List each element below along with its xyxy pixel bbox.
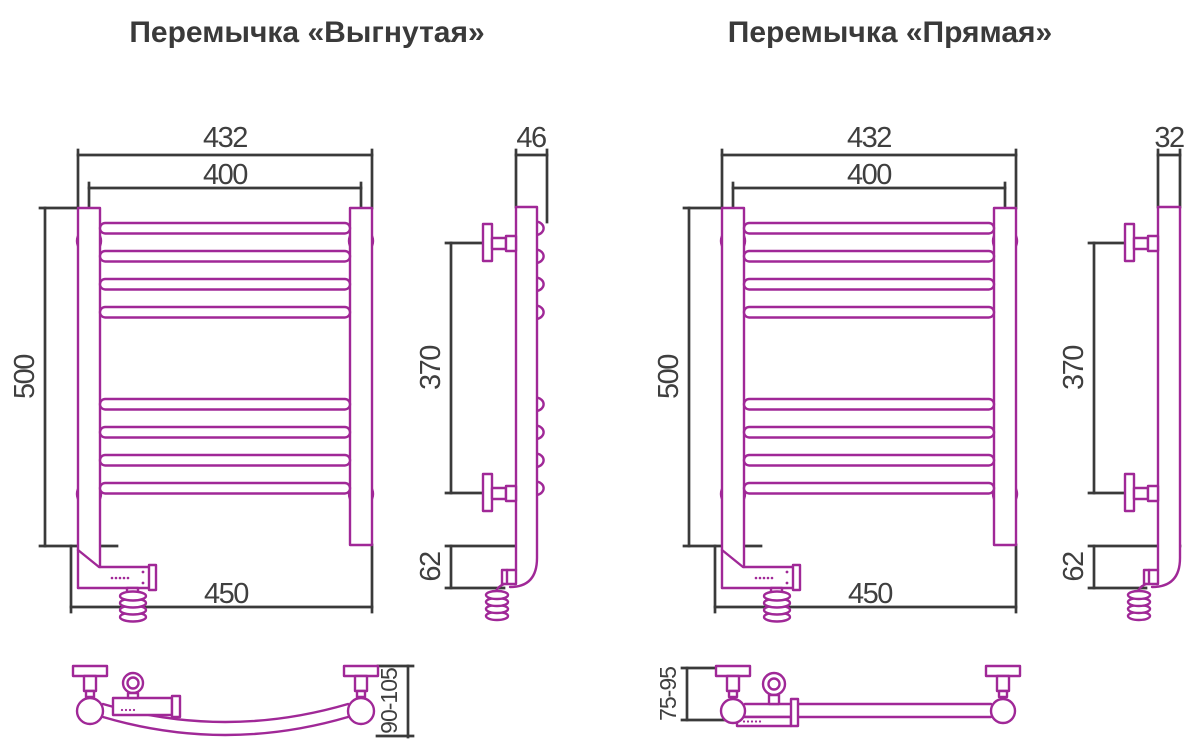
left-side-bottom-offset-label: 62 <box>415 552 447 582</box>
crossbars <box>100 223 350 494</box>
wall-bracket-top <box>483 224 516 261</box>
heating-unit <box>78 550 156 590</box>
heating-unit-top <box>113 673 180 717</box>
mount-top-left <box>73 666 107 697</box>
left-side-mount-spacing-label: 370 <box>415 346 447 390</box>
left-drawing-title: Перемычка «Выгнутая» <box>129 16 484 49</box>
technical-drawing-page: Перемычка «Выгнутая» 432 400 500 450 <box>0 0 1200 755</box>
mount-top-left <box>716 666 750 697</box>
right-front-axis-width-label: 400 <box>847 159 891 191</box>
post-end <box>348 698 374 724</box>
straight-crossbar <box>745 704 991 717</box>
post-end <box>77 698 103 724</box>
right-top-wall-clearance-label: 75-95 <box>655 667 681 721</box>
left-front-bottom-width-label: 450 <box>204 578 248 610</box>
left-front-view <box>77 208 373 622</box>
left-top-wall-clearance-label: 90-105 <box>376 668 402 734</box>
right-top-view <box>716 666 1020 726</box>
left-front-height-label: 500 <box>9 355 41 399</box>
left-top-view <box>73 666 378 735</box>
left-side-depth-label: 46 <box>516 122 546 154</box>
left-front-axis-width-label: 400 <box>203 159 247 191</box>
right-side-depth-label: 32 <box>1154 122 1184 154</box>
right-front-bottom-width-label: 450 <box>848 578 892 610</box>
power-cord-coil-side <box>1128 591 1150 620</box>
right-drawing-title: Перемычка «Прямая» <box>728 16 1052 49</box>
cord-gland-top <box>763 673 785 695</box>
post-end <box>991 699 1015 723</box>
right-front-height-label: 500 <box>653 355 685 399</box>
power-cord-coil <box>120 588 146 622</box>
cable-gland <box>496 570 516 592</box>
left-side-view <box>483 207 544 620</box>
right-front-overall-width-label: 432 <box>847 122 891 154</box>
power-cord-coil <box>764 588 790 622</box>
mount-top-right <box>986 666 1020 697</box>
left-drawing: Перемычка «Выгнутая» 432 400 500 450 <box>9 16 547 737</box>
right-drawing: Перемычка «Прямая» 432 400 500 450 <box>653 16 1184 726</box>
left-front-overall-width-label: 432 <box>203 122 247 154</box>
cord-gland-top <box>123 673 143 693</box>
right-side-mount-spacing-label: 370 <box>1058 346 1090 390</box>
heating-unit <box>722 550 800 590</box>
post-end <box>721 699 745 723</box>
cable-gland <box>1138 570 1158 592</box>
right-side-bottom-offset-label: 62 <box>1058 552 1090 582</box>
crossbars <box>744 223 994 494</box>
heating-unit-top <box>737 673 798 726</box>
mount-top-right <box>344 666 378 697</box>
wall-bracket-top <box>1125 224 1158 261</box>
power-cord-coil-side <box>486 591 508 620</box>
towel-rail-drawing: Перемычка «Выгнутая» 432 400 500 450 <box>0 0 1200 755</box>
right-front-view <box>721 208 1017 622</box>
right-side-view <box>1125 207 1180 620</box>
wall-bracket-bottom <box>1125 474 1158 511</box>
wall-bracket-bottom <box>483 474 516 511</box>
